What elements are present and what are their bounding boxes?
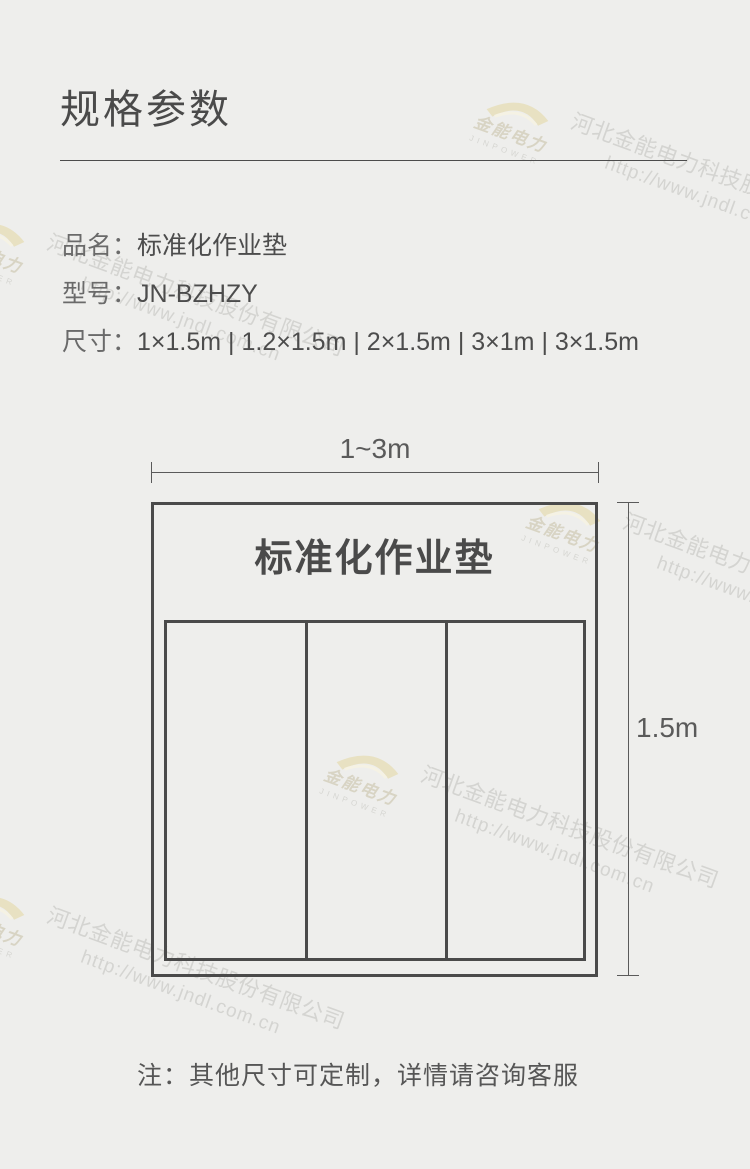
height-dimension-tick (617, 502, 639, 503)
spec-value: 标准化作业垫 (137, 232, 287, 260)
spec-value: JN-BZHZY (137, 280, 258, 308)
height-dimension-line (628, 502, 629, 976)
width-dimension-label: 1~3m (151, 433, 599, 465)
product-spec-page: 金能电力 JINPOWER 河北金能电力科技股份有限公司 http://www.… (0, 0, 750, 1169)
spec-label: 型号： (62, 280, 137, 308)
height-dimension-label: 1.5m (636, 712, 698, 744)
section-title: 规格参数 (60, 90, 232, 130)
mat-inner-panel (164, 620, 586, 961)
spec-row-product-name: 品名：标准化作业垫 (62, 231, 287, 261)
spec-label: 尺寸： (62, 328, 137, 356)
spec-value: 1×1.5m | 1.2×1.5m | 2×1.5m | 3×1m | 3×1.… (137, 328, 639, 356)
mat-panel-divider (445, 623, 448, 958)
width-dimension-line (151, 472, 599, 473)
width-dimension-tick (151, 462, 152, 483)
mat-label: 标准化作业垫 (154, 539, 595, 581)
content-layer: 规格参数 品名：标准化作业垫 型号：JN-BZHZY 尺寸：1×1.5m | 1… (0, 0, 750, 1169)
height-dimension-tick (617, 975, 639, 976)
spec-label: 品名： (62, 232, 137, 260)
mat-panel-divider (305, 623, 308, 958)
mat-outline: 标准化作业垫 (151, 502, 598, 977)
width-dimension-tick (598, 462, 599, 483)
custom-size-note: 注：其他尺寸可定制，详情请咨询客服 (0, 1056, 716, 1092)
spec-row-model: 型号：JN-BZHZY (62, 279, 258, 309)
spec-row-size: 尺寸：1×1.5m | 1.2×1.5m | 2×1.5m | 3×1m | 3… (62, 327, 639, 357)
title-divider (60, 160, 687, 161)
